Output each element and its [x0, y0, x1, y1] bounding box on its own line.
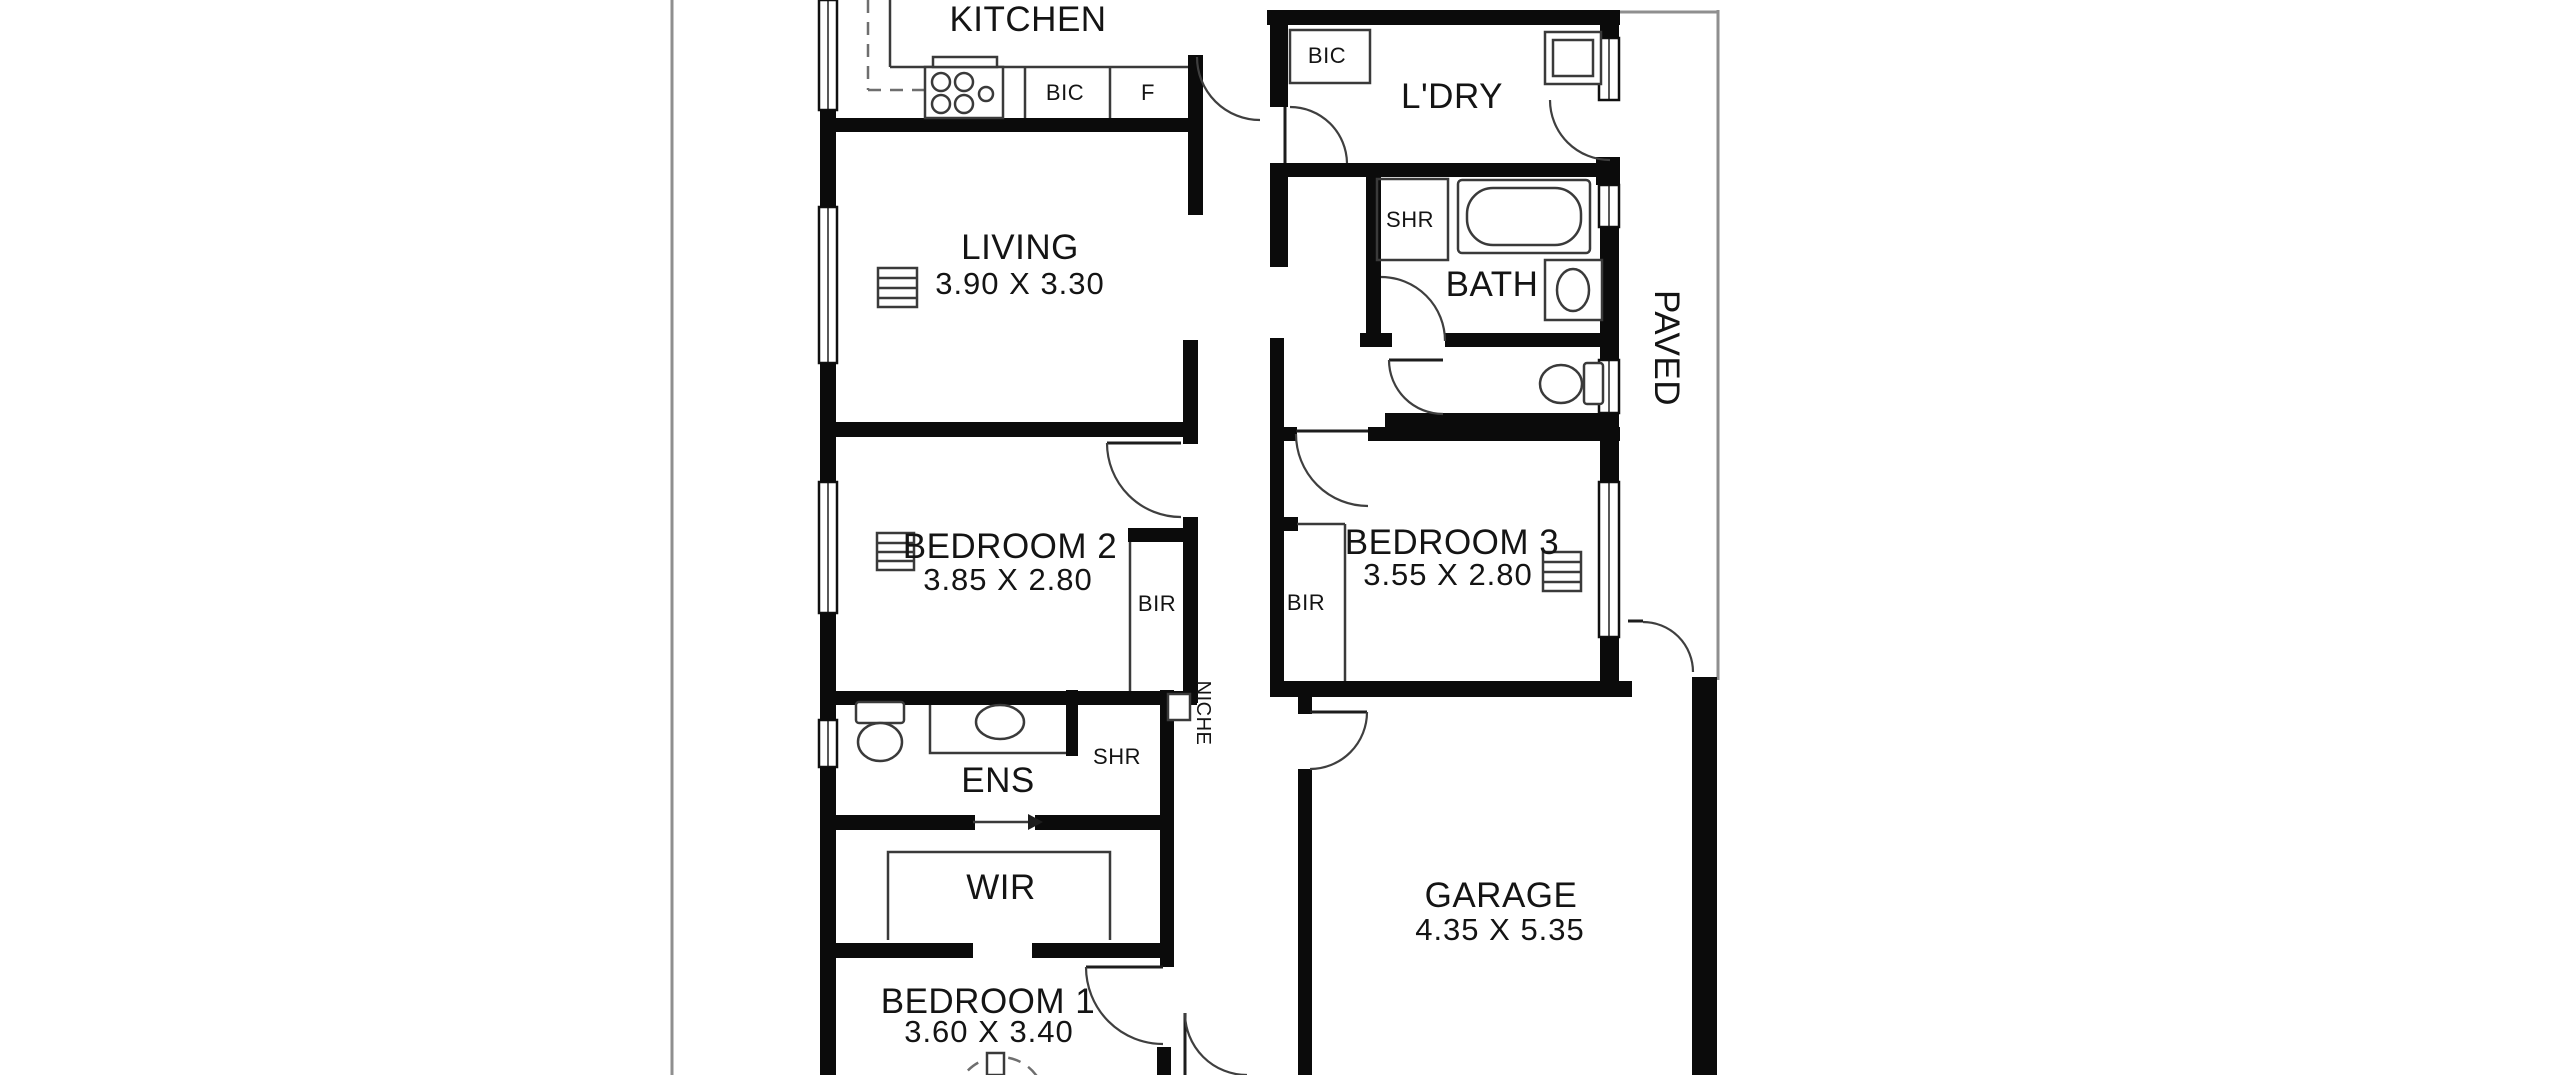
bedroom3-robe-label: BIR: [1287, 590, 1325, 615]
ensuite-vanity-icon: [930, 705, 1066, 753]
kitchen-fridge-label: F: [1141, 80, 1155, 105]
entry-door: [1197, 57, 1260, 120]
laundry-trough-icon: [1545, 32, 1601, 84]
bedroom1-dims: 3.60 X 3.40: [904, 1014, 1074, 1049]
garage-dims: 4.35 X 5.35: [1415, 912, 1585, 947]
hall-bottom-door: [1185, 1013, 1247, 1075]
ensuite-label: ENS: [961, 761, 1034, 800]
window: [819, 482, 837, 613]
window: [819, 207, 837, 363]
living-label: LIVING: [961, 228, 1079, 267]
window: [1599, 482, 1619, 637]
bedroom2-robe-label: BIR: [1138, 591, 1176, 616]
paved-label: PAVED: [1647, 290, 1686, 406]
window: [1599, 185, 1619, 227]
heater-vent-icon: [878, 268, 917, 307]
bath-vanity-icon: [1545, 260, 1602, 320]
wir-label: WIR: [966, 868, 1036, 907]
bathtub-icon: [1458, 180, 1590, 253]
laundry-label: L'DRY: [1401, 77, 1503, 116]
kitchen-label: KITCHEN: [949, 0, 1106, 39]
ceiling-fan-icon: [955, 1053, 1045, 1075]
ensuite-shower-label: SHR: [1093, 744, 1141, 769]
floor-plan-canvas: KITCHEN BIC F L'DRY BIC SHR BATH PAVED L…: [0, 0, 2560, 1075]
window: [819, 720, 837, 767]
kitchen-bic-label: BIC: [1046, 80, 1084, 105]
bedroom3-door: [1296, 431, 1368, 506]
wc-toilet-icon: [1540, 363, 1603, 404]
window: [819, 0, 837, 110]
bath-shower-label: SHR: [1386, 207, 1434, 232]
bath-label: BATH: [1446, 265, 1539, 304]
laundry-external-door: [1550, 100, 1610, 160]
cavity-slider-arrow: [973, 814, 1043, 830]
bedroom3-dims: 3.55 X 2.80: [1363, 557, 1533, 592]
bedroom1-door: [1086, 967, 1163, 1044]
bath-door: [1381, 277, 1445, 341]
laundry-hall-door: [1285, 107, 1347, 163]
kitchen-overhead-dashed: [868, 0, 925, 90]
niche-box: [1168, 694, 1190, 720]
bedroom2-dims: 3.85 X 2.80: [923, 562, 1093, 597]
ensuite-toilet-icon: [856, 702, 904, 761]
niche-label: NICHE: [1192, 681, 1214, 746]
cooktop-icon: [925, 57, 1003, 118]
living-dims: 3.90 X 3.30: [935, 266, 1105, 301]
bedroom2-door: [1107, 443, 1181, 517]
rear-yard-gate: [1628, 621, 1693, 672]
floor-plan-page: KITCHEN BIC F L'DRY BIC SHR BATH PAVED L…: [0, 0, 2560, 1075]
laundry-bic-label: BIC: [1308, 43, 1346, 68]
garage-door: [1310, 712, 1367, 769]
garage-label: GARAGE: [1425, 876, 1578, 915]
wc-door: [1389, 360, 1443, 414]
bedroom2-label: BEDROOM 2: [903, 527, 1118, 566]
